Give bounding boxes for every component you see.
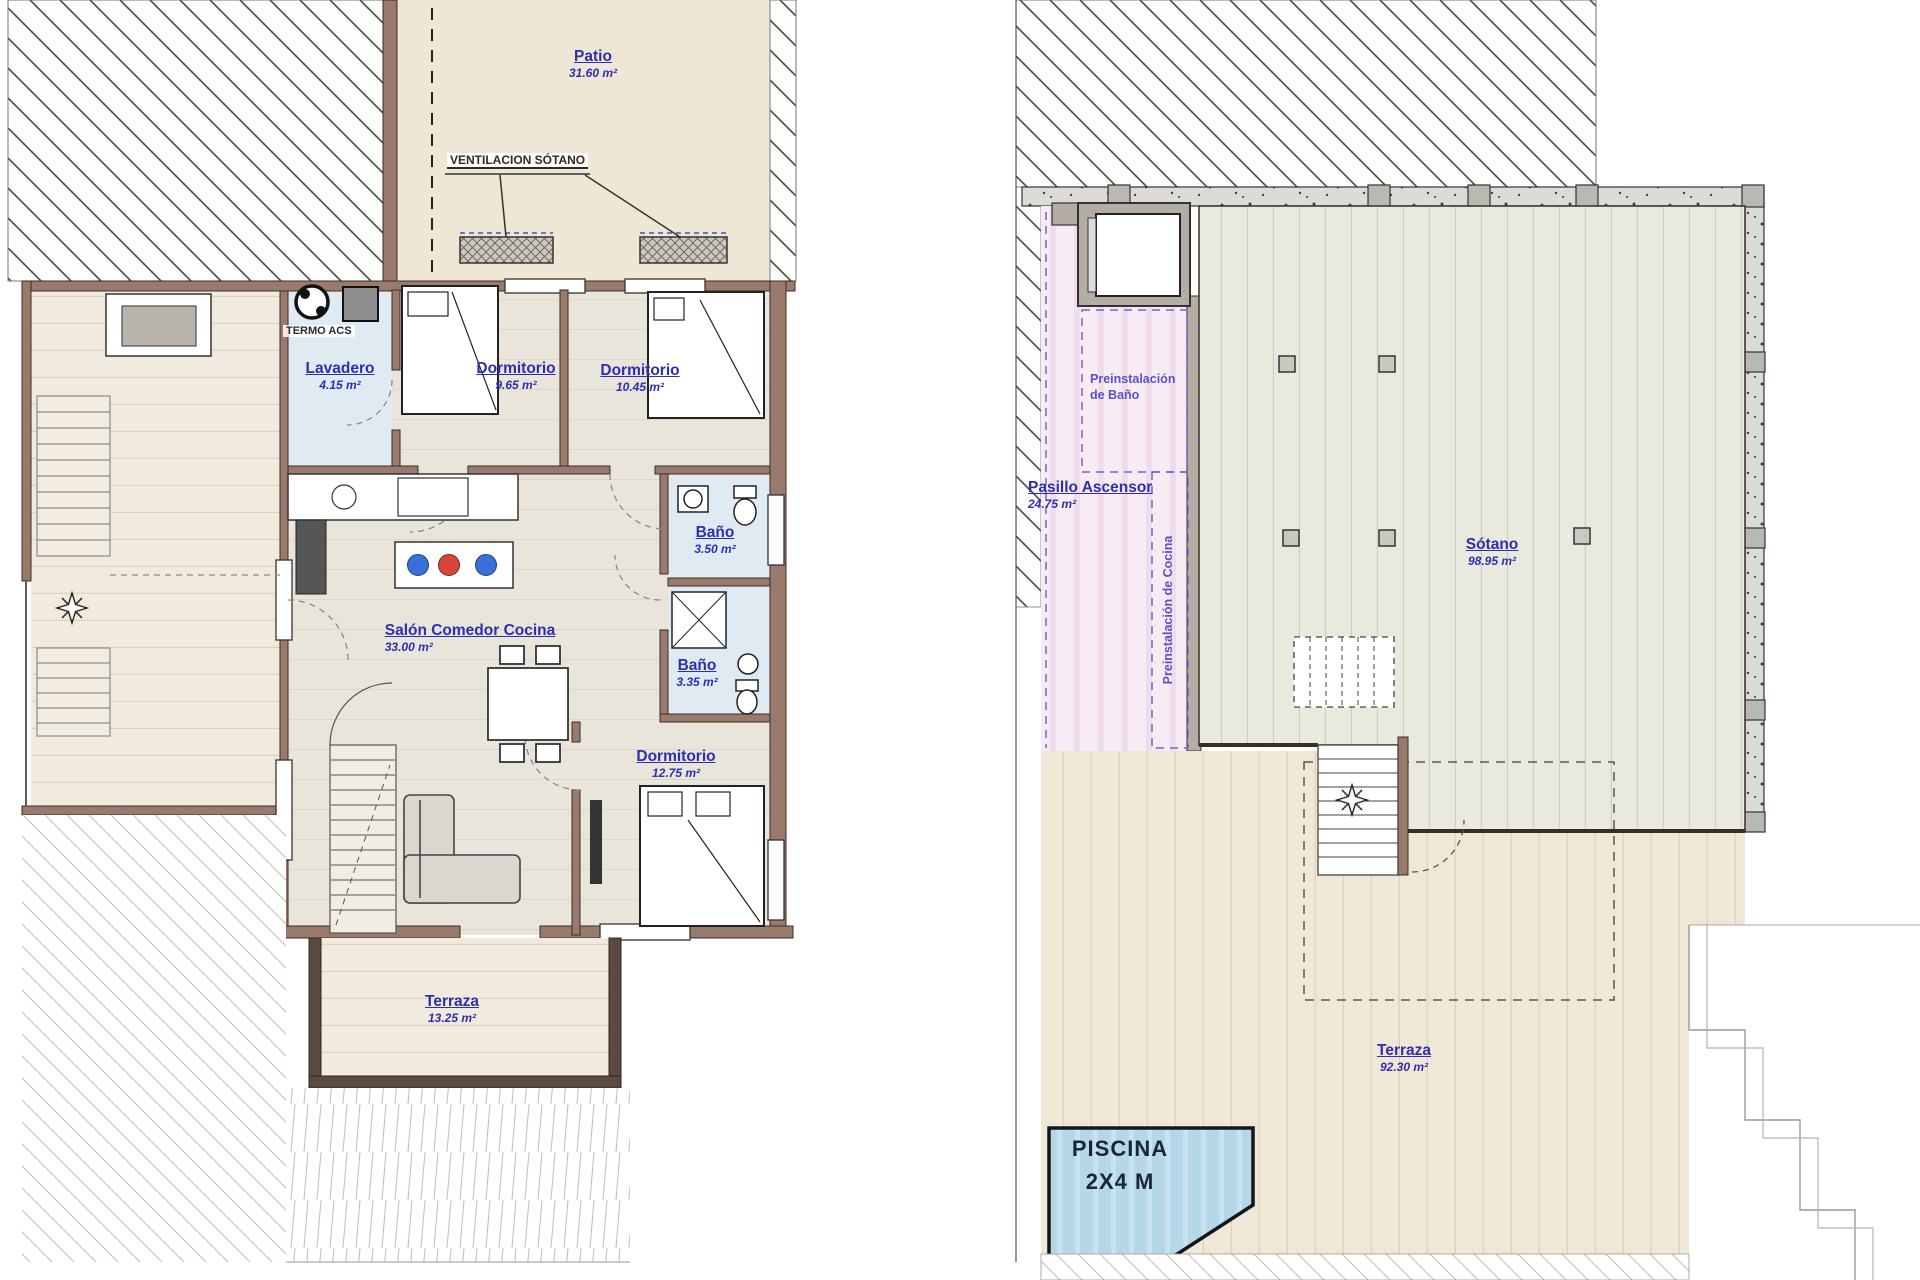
pool-label-line: 2X4 M <box>1072 1165 1168 1198</box>
room-label-salon: Salón Comedor Cocina 33.00 m² <box>385 622 556 654</box>
room-name: Salón Comedor Cocina <box>385 622 556 640</box>
bed-dormitorio-1 <box>402 286 498 414</box>
hatch-bottom-left <box>22 815 286 1262</box>
room-area: 10.45 m² <box>600 380 679 394</box>
plan-right-graphics <box>1016 0 1920 1280</box>
room-area: 12.75 m² <box>636 766 715 780</box>
tv-unit <box>590 800 602 884</box>
floorplan-drawing <box>0 0 1920 1280</box>
room-name: Dormitorio <box>476 360 555 378</box>
exterior-steps <box>1689 925 1920 1280</box>
room-label-pasillo-ascensor: Pasillo Ascensor 24.75 m² <box>1028 479 1152 511</box>
room-area: 98.95 m² <box>1466 554 1519 568</box>
room-label-sotano: Sótano 98.95 m² <box>1466 536 1519 568</box>
room-label-terraza-right: Terraza 92.30 m² <box>1377 1042 1431 1074</box>
floorplan-sheet: Patio 31.60 m² VENTILACION SÓTANO TERMO … <box>0 0 1920 1280</box>
room-name: Patio <box>569 48 617 66</box>
room-area: 3.35 m² <box>676 675 717 689</box>
room-area: 4.15 m² <box>306 378 375 392</box>
neighbor-hatch-left-strip <box>1016 187 1041 607</box>
label-preinstalacion-cocina: Preinstalación de Cocina <box>1160 536 1176 685</box>
deck-planter <box>106 294 211 356</box>
room-area: 3.50 m² <box>694 542 735 556</box>
room-area: 9.65 m² <box>476 378 555 392</box>
room-label-terraza-left: Terraza 13.25 m² <box>425 993 479 1025</box>
room-label-lavadero: Lavadero 4.15 m² <box>306 360 375 392</box>
sotano-floor <box>1199 206 1745 831</box>
room-label-bano-2: Baño 3.35 m² <box>676 657 717 689</box>
label-line: Preinstalación <box>1090 371 1175 387</box>
neighbor-hatch-top-right-plan <box>1016 0 1596 187</box>
neighbor-hatch-topleft <box>8 0 383 281</box>
hatch-below-terraza <box>286 1088 630 1262</box>
room-name: Lavadero <box>306 360 375 378</box>
room-label-patio: Patio 31.60 m² <box>569 48 617 80</box>
room-area: 92.30 m² <box>1377 1060 1431 1074</box>
room-label-dormitorio-1: Dormitorio 9.65 m² <box>476 360 555 392</box>
annotation-termo-acs: TERMO ACS <box>283 325 355 337</box>
room-name: Baño <box>694 524 735 542</box>
room-name: Pasillo Ascensor <box>1028 479 1152 497</box>
room-name: Terraza <box>1377 1042 1431 1060</box>
label-preinstalacion-bano: Preinstalación de Baño <box>1090 371 1175 404</box>
pool-label-line: PISCINA <box>1072 1132 1168 1165</box>
room-name: Dormitorio <box>636 748 715 766</box>
annotation-ventilacion-sotano: VENTILACION SÓTANO <box>447 153 588 169</box>
hatch-strip-bottom <box>1041 1254 1689 1280</box>
room-name: Dormitorio <box>600 362 679 380</box>
pool-label: PISCINA 2X4 M <box>1072 1132 1168 1198</box>
room-area: 33.00 m² <box>385 640 556 654</box>
bed-dormitorio-2 <box>648 292 764 418</box>
room-name: Sótano <box>1466 536 1519 554</box>
room-area: 31.60 m² <box>569 66 617 80</box>
room-label-bano-1: Baño 3.50 m² <box>694 524 735 556</box>
bed-dormitorio-3 <box>640 786 764 926</box>
room-area: 13.25 m² <box>425 1011 479 1025</box>
hob-burners <box>408 555 497 576</box>
label-line: de Baño <box>1090 387 1175 403</box>
room-area: 24.75 m² <box>1028 497 1152 511</box>
room-name: Terraza <box>425 993 479 1011</box>
room-label-dormitorio-3: Dormitorio 12.75 m² <box>636 748 715 780</box>
room-label-dormitorio-2: Dormitorio 10.45 m² <box>600 362 679 394</box>
room-name: Baño <box>676 657 717 675</box>
neighbor-hatch-topright <box>770 0 796 281</box>
